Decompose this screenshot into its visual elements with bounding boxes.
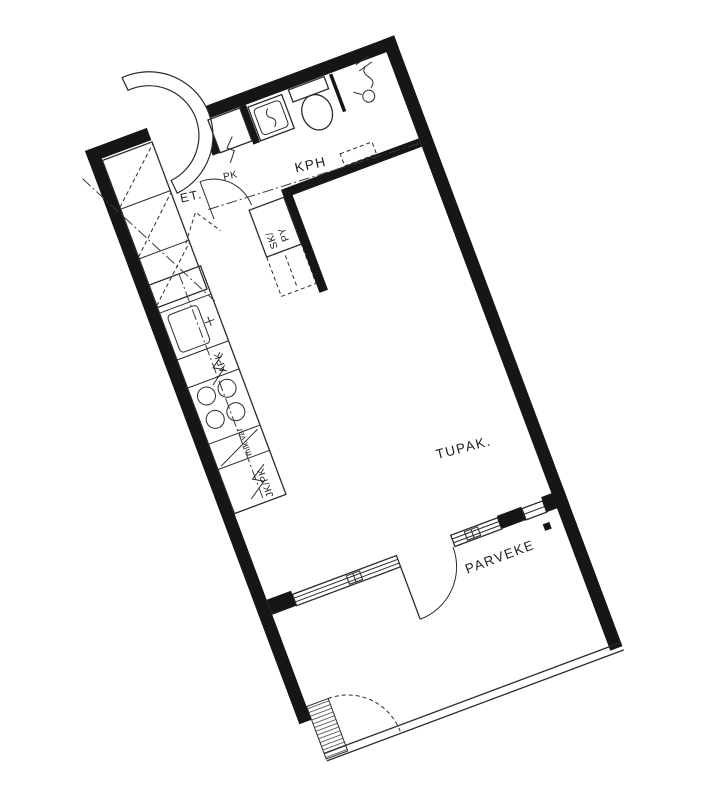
entry-door-leaf xyxy=(122,53,231,197)
fridge-label: JK/PK xyxy=(256,466,277,498)
cleaning-closet-label-2: PY xyxy=(277,226,292,243)
balcony-railing xyxy=(324,642,624,761)
balcony-door xyxy=(401,547,473,619)
shower-partition xyxy=(331,74,345,111)
washer-callout-zigzag xyxy=(222,137,241,163)
apartment-plan: ET. PK xyxy=(54,0,624,770)
bathroom-label: KPH xyxy=(293,154,328,176)
window-band-right xyxy=(451,518,502,547)
window-small-right xyxy=(522,501,547,520)
floor-plan-page: ET. PK xyxy=(0,0,709,798)
microwave-label: mik.var xyxy=(234,426,254,457)
balcony-label: PARVEKE xyxy=(463,537,537,577)
stove xyxy=(195,377,248,431)
balcony-post-dot xyxy=(543,522,552,531)
floor-plan-canvas: ET. PK xyxy=(0,0,709,798)
glazing-black-segment xyxy=(497,507,526,529)
window-band-left xyxy=(292,556,400,606)
balcony-divider-hatch xyxy=(307,699,348,760)
living-room-label: TUPAK. xyxy=(434,433,493,462)
kitchen-sink xyxy=(167,301,221,354)
